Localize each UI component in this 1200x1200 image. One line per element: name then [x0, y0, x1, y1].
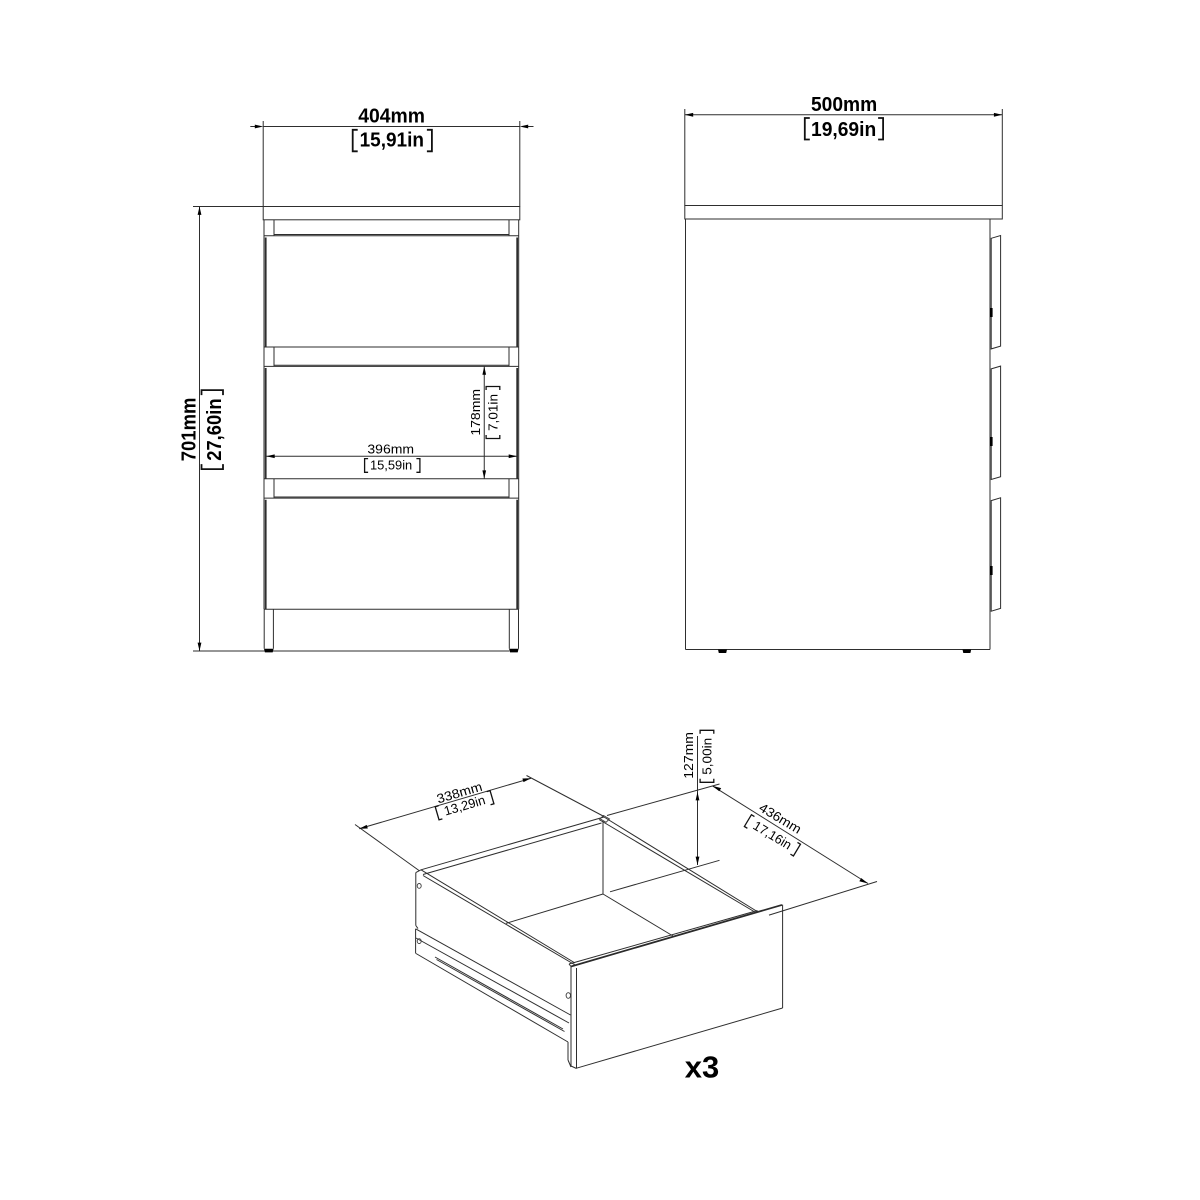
- svg-text:500mm: 500mm: [811, 94, 877, 116]
- svg-text:x3: x3: [685, 1050, 719, 1085]
- svg-text:15,59in: 15,59in: [370, 457, 412, 472]
- svg-text:5,00in: 5,00in: [699, 738, 714, 775]
- svg-text:701mm: 701mm: [178, 398, 200, 462]
- svg-text:7,01in: 7,01in: [485, 394, 500, 431]
- svg-text:127mm: 127mm: [681, 732, 696, 779]
- svg-text:19,69in: 19,69in: [811, 119, 876, 141]
- svg-text:27,60in: 27,60in: [204, 398, 226, 460]
- svg-text:15,91in: 15,91in: [360, 129, 424, 151]
- svg-text:178mm: 178mm: [468, 389, 483, 436]
- svg-text:396mm: 396mm: [367, 441, 414, 456]
- svg-text:404mm: 404mm: [358, 106, 425, 128]
